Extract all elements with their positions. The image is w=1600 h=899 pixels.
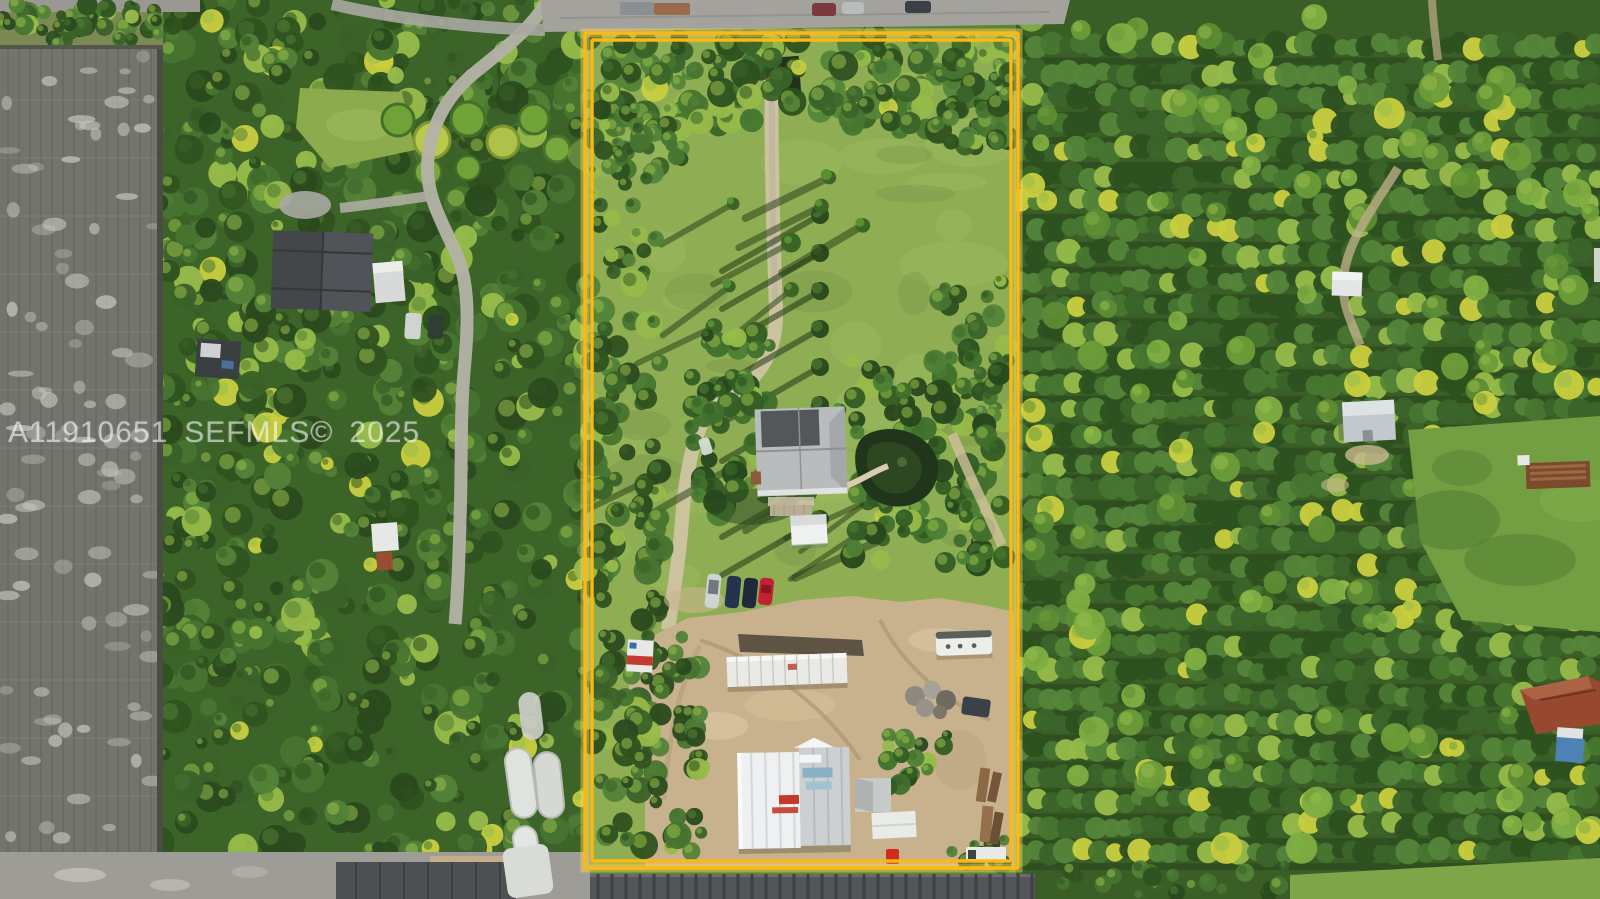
watermark-year: 2025 — [349, 416, 420, 449]
subject-property — [568, 23, 1023, 875]
orchard-white-shed — [1332, 271, 1363, 296]
gabled-shed — [855, 778, 891, 812]
white-shed-2 — [871, 811, 916, 839]
neighbor-rv-tarp — [372, 261, 405, 303]
red-car — [758, 577, 775, 605]
red-door — [779, 795, 799, 804]
neighbor-house — [271, 230, 374, 311]
mls-watermark: A11910651SEFMLS©2025 — [8, 416, 420, 450]
warehouse — [737, 737, 851, 854]
tarp-shed — [195, 339, 242, 380]
barn-roof — [590, 874, 1035, 899]
south-dark-roof — [336, 862, 516, 899]
roof-dark-panel — [761, 409, 820, 447]
front-deck — [768, 497, 814, 516]
red-white-shed — [626, 639, 654, 672]
detached-shed — [790, 514, 828, 549]
white-tank — [502, 843, 555, 899]
semi-trailer — [727, 653, 848, 692]
orchard-rows — [1007, 0, 1600, 899]
rv-trailer — [936, 630, 993, 660]
watermark-listing-id: A11910651 — [8, 416, 168, 449]
blue-panel — [802, 767, 832, 778]
aerial-photo: A11910651SEFMLS©2025 — [0, 0, 1600, 899]
grove-gray-shed — [1337, 400, 1396, 443]
chimney — [751, 471, 761, 484]
watermark-source: SEFMLS© — [184, 416, 333, 449]
